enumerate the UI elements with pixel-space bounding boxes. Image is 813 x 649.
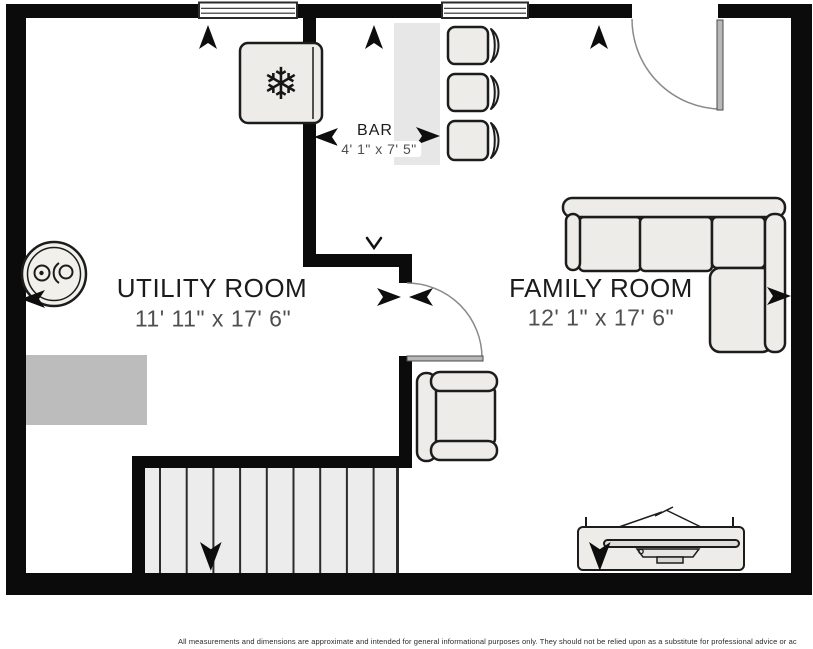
disclaimer-text: All measurements and dimensions are appr… bbox=[178, 637, 797, 646]
wall-below-door bbox=[399, 356, 412, 468]
sofa-cushion bbox=[712, 217, 765, 268]
arrow-down-small-icon bbox=[367, 238, 381, 248]
floor-plan-svg: ❄ bbox=[0, 0, 813, 649]
arrow-right-icon bbox=[377, 288, 401, 306]
door-swing-arc bbox=[632, 19, 721, 109]
stairs-treads bbox=[145, 468, 399, 573]
wall-top-left bbox=[6, 4, 632, 18]
sofa-cushion bbox=[579, 217, 641, 271]
armchair-top-arm bbox=[431, 372, 497, 391]
utility-room-dimensions: 11' 11" x 17' 6" bbox=[135, 308, 291, 331]
arrow-up-icon bbox=[590, 25, 608, 49]
sofa-chaise bbox=[710, 268, 772, 352]
wall-above-door bbox=[399, 254, 412, 283]
bar-dimensions: 4' 1" x 7' 5" bbox=[337, 141, 421, 157]
window-symbol-2 bbox=[442, 3, 528, 19]
sofa-back bbox=[563, 198, 785, 217]
wall-right bbox=[791, 4, 812, 595]
bar-stool-1 bbox=[448, 27, 499, 64]
arrow-up-icon bbox=[199, 25, 217, 49]
tv-screen bbox=[604, 540, 739, 547]
stairs bbox=[145, 468, 399, 573]
armchair-seat bbox=[433, 387, 495, 444]
snowflake-icon: ❄ bbox=[263, 59, 300, 110]
sofa-left-arm bbox=[566, 214, 580, 270]
bar-label: BAR bbox=[357, 123, 393, 139]
wall-stairs-left bbox=[132, 456, 145, 573]
wall-bottom bbox=[6, 573, 812, 595]
storage-block bbox=[22, 355, 147, 425]
door-top-right bbox=[632, 19, 723, 110]
sofa-cushion bbox=[640, 217, 712, 271]
sofa-right-arm bbox=[765, 214, 785, 352]
door-leaf bbox=[717, 20, 723, 110]
utility-room-label: UTILITY ROOM bbox=[117, 275, 307, 301]
floor-plan-page: ❄ bbox=[0, 0, 813, 649]
arrow-left-icon bbox=[409, 288, 433, 306]
door-leaf bbox=[407, 356, 483, 361]
window-symbol-1 bbox=[199, 3, 297, 19]
tv-stand bbox=[637, 549, 699, 557]
family-room-label: FAMILY ROOM bbox=[509, 275, 693, 301]
family-room-dimensions: 12' 1" x 17' 6" bbox=[528, 307, 674, 330]
armchair bbox=[417, 372, 497, 461]
bar-stool-3 bbox=[448, 121, 499, 160]
arrow-left-icon bbox=[314, 128, 338, 146]
freezer: ❄ bbox=[240, 43, 322, 123]
wall-utility-family-jog bbox=[303, 254, 412, 267]
wall-stairs-top bbox=[132, 456, 412, 468]
arrow-up-icon bbox=[365, 25, 383, 49]
bar-stool-2 bbox=[448, 74, 499, 111]
armchair-bottom-arm bbox=[431, 441, 497, 460]
